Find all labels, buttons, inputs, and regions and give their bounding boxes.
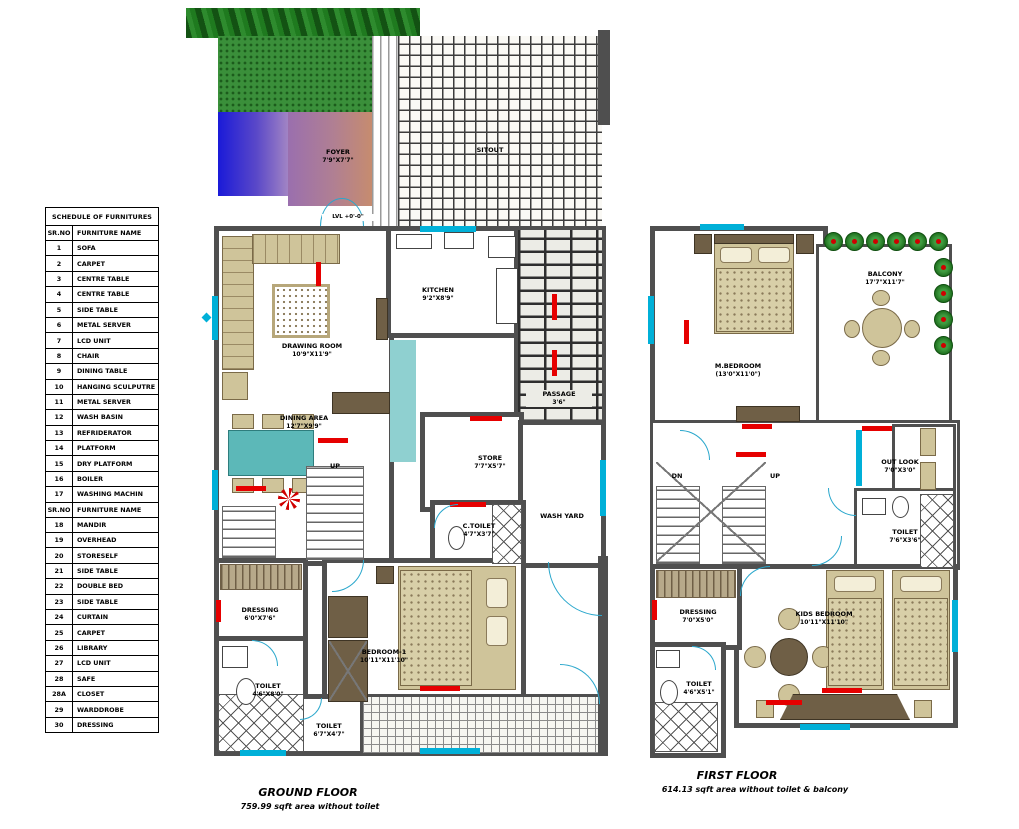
table-row: 19OVERHEAD bbox=[46, 533, 158, 548]
window bbox=[952, 600, 958, 652]
floor-plan-sheet: SCHEDULE OF FURNITURES SR.NO FURNITURE N… bbox=[0, 0, 1019, 829]
window bbox=[212, 470, 218, 510]
table-row: 20STORESELF bbox=[46, 548, 158, 563]
pillow bbox=[486, 578, 508, 608]
chair bbox=[872, 350, 890, 366]
side-table bbox=[694, 234, 712, 254]
window bbox=[648, 296, 654, 344]
level-label: LVL +0'-0" bbox=[322, 214, 374, 221]
room-label-toilet-master: TOILET 7'6"X3'6" bbox=[872, 528, 938, 545]
marker bbox=[652, 600, 657, 620]
table-row: 22DOUBLE BED bbox=[46, 579, 158, 594]
table-row: 12WASH BASIN bbox=[46, 410, 158, 425]
window bbox=[856, 430, 862, 486]
table-row: 18MANDIR bbox=[46, 518, 158, 533]
plant-icon bbox=[929, 232, 948, 251]
table-row: 26LIBRARY bbox=[46, 641, 158, 656]
sitout-paving bbox=[398, 36, 602, 232]
marker bbox=[766, 700, 802, 705]
table-row: 28ACLOSET bbox=[46, 687, 158, 702]
schedule-col-srno: SR.NO bbox=[46, 226, 73, 240]
centre-table bbox=[272, 284, 330, 338]
table-row: 2CARPET bbox=[46, 256, 158, 271]
schedule-col-srno: SR.NO bbox=[46, 503, 73, 517]
table-row: 28SAFE bbox=[46, 672, 158, 687]
room-label-foyer: FOYER 7'9"X7'7" bbox=[300, 148, 376, 165]
table-row: 9DINING TABLE bbox=[46, 364, 158, 379]
sofa bbox=[222, 236, 254, 370]
plant-icon bbox=[866, 232, 885, 251]
side-table bbox=[222, 372, 248, 400]
marker bbox=[316, 262, 321, 286]
table-row: 6METAL SERVER bbox=[46, 318, 158, 333]
marker bbox=[742, 424, 772, 429]
table-row: 13REFRIDERATOR bbox=[46, 426, 158, 441]
stair-direction-label: UP bbox=[760, 472, 790, 481]
bed-blanket bbox=[400, 570, 472, 686]
chair bbox=[744, 646, 766, 668]
window bbox=[212, 296, 218, 340]
marker bbox=[684, 320, 689, 344]
plant-icon bbox=[934, 310, 953, 329]
pillow bbox=[720, 247, 752, 263]
table-row: 27LCD UNIT bbox=[46, 656, 158, 671]
marker bbox=[420, 686, 460, 691]
shower-area bbox=[654, 702, 718, 752]
window bbox=[800, 724, 850, 730]
ground-floor-area: 759.99 sqft area without toilet bbox=[200, 802, 420, 811]
table-row: 5SIDE TABLE bbox=[46, 303, 158, 318]
bed-blanket bbox=[894, 598, 948, 686]
marker bbox=[736, 452, 766, 457]
table-row: 14PLATFORM bbox=[46, 441, 158, 456]
side-table bbox=[796, 234, 814, 254]
table-row: 8CHAIR bbox=[46, 349, 158, 364]
window bbox=[700, 224, 744, 230]
first-floor-title: FIRST FLOOR bbox=[662, 769, 812, 782]
schedule-rows-2: 18MANDIR19OVERHEAD20STORESELF21SIDE TABL… bbox=[46, 518, 158, 732]
table-row: 30DRESSING bbox=[46, 718, 158, 732]
wardrobe-rail bbox=[656, 570, 736, 598]
table-row: 25CARPET bbox=[46, 625, 158, 640]
lcd-unit bbox=[376, 298, 388, 340]
furniture-schedule-table: SCHEDULE OF FURNITURES SR.NO FURNITURE N… bbox=[45, 207, 159, 733]
room-label-kitchen: KITCHEN 9'2"X8'9" bbox=[398, 286, 478, 303]
room-label-passage: PASSAGE 3'6" bbox=[526, 390, 592, 407]
staircase-gf-lower bbox=[222, 506, 276, 558]
window bbox=[420, 748, 480, 754]
marker bbox=[552, 294, 557, 320]
schedule-title: SCHEDULE OF FURNITURES bbox=[46, 208, 158, 226]
level-marker-icon bbox=[202, 313, 212, 323]
wc-fixture bbox=[892, 496, 909, 518]
room-label-bedroom-1: BEDROOM-1 10'11"X11'10" bbox=[344, 648, 424, 665]
first-floor-area: 614.13 sqft area without toilet & balcon… bbox=[640, 785, 870, 794]
garden-lawn bbox=[218, 36, 374, 116]
pillow bbox=[834, 576, 876, 592]
room-wash-yard bbox=[518, 420, 606, 568]
marker bbox=[862, 426, 892, 431]
table-row: 24CURTAIN bbox=[46, 610, 158, 625]
table-row: 1SOFA bbox=[46, 241, 158, 256]
schedule-col-name: FURNITURE NAME bbox=[73, 503, 158, 517]
plant-icon bbox=[934, 336, 953, 355]
room-label-toilet-side: TOILET 4'6"X8'0" bbox=[232, 682, 304, 699]
table-row: 29WARDDROBE bbox=[46, 702, 158, 717]
bed-headboard bbox=[714, 234, 794, 244]
plant-icon bbox=[887, 232, 906, 251]
side-table bbox=[914, 700, 932, 718]
wash-basin bbox=[862, 498, 886, 515]
wardrobe bbox=[328, 596, 368, 638]
plant-icon bbox=[934, 284, 953, 303]
room-label-dining: DINING AREA 12'7"X9'9" bbox=[264, 414, 344, 431]
room-label-dressing-gf: DRESSING 6'0"X7'6" bbox=[224, 606, 296, 623]
wash-basin bbox=[656, 650, 680, 668]
passage-floor bbox=[390, 340, 416, 462]
room-label-toilet-common: TOILET 6'7"X4'7" bbox=[296, 722, 362, 739]
wash-basin bbox=[222, 646, 248, 668]
kitchen-sink bbox=[444, 232, 474, 249]
table-row: 10HANGING SCULPUTRE bbox=[46, 380, 158, 395]
room-label-wash-yard: WASH YARD bbox=[524, 512, 600, 521]
chair bbox=[232, 414, 254, 429]
pillow bbox=[758, 247, 790, 263]
table-row: 15DRY PLATFORM bbox=[46, 456, 158, 471]
hanging-sculpture-icon bbox=[278, 488, 300, 510]
table-row: 3CENTRE TABLE bbox=[46, 272, 158, 287]
stair-direction-label: DN bbox=[662, 472, 692, 481]
plant-icon bbox=[934, 258, 953, 277]
schedule-header-2: SR.NO FURNITURE NAME bbox=[46, 502, 158, 518]
water-feature bbox=[218, 112, 288, 196]
plant-icon bbox=[908, 232, 927, 251]
table-row: 11METAL SERVER bbox=[46, 395, 158, 410]
shutter-panel bbox=[920, 428, 936, 456]
dining-table bbox=[228, 430, 314, 476]
marker bbox=[822, 688, 862, 693]
wardrobe bbox=[736, 406, 800, 422]
entry-steps bbox=[372, 36, 398, 234]
window bbox=[420, 226, 476, 232]
schedule-header: SR.NO FURNITURE NAME bbox=[46, 226, 158, 241]
room-label-c-toilet: C.TOILET 4'7"X3'7" bbox=[444, 522, 514, 539]
marker bbox=[216, 600, 221, 622]
table-row: 21SIDE TABLE bbox=[46, 564, 158, 579]
metal-server bbox=[332, 392, 390, 414]
window bbox=[240, 750, 286, 756]
room-label-outlook: OUT LOOK 7'0"X3'0" bbox=[868, 458, 932, 475]
store-shelf bbox=[496, 268, 518, 324]
table-row: 4CENTRE TABLE bbox=[46, 287, 158, 302]
marker bbox=[318, 438, 348, 443]
schedule-rows-1: 1SOFA2CARPET3CENTRE TABLE4CENTRE TABLE5S… bbox=[46, 241, 158, 502]
sofa bbox=[252, 234, 340, 264]
door-arc bbox=[560, 664, 600, 704]
table-row: 16BOILER bbox=[46, 472, 158, 487]
plant-icon bbox=[824, 232, 843, 251]
round-table bbox=[770, 638, 808, 676]
room-label-sitout: SITOUT bbox=[452, 146, 528, 155]
window bbox=[600, 460, 606, 516]
round-table bbox=[862, 308, 902, 348]
staircase-gf bbox=[306, 466, 364, 560]
chair bbox=[844, 320, 860, 338]
room-label-drawing: DRAWING ROOM 10'9"X11'9" bbox=[272, 342, 352, 359]
room-label-master: M.BEDROOM (13'0"X11'0") bbox=[698, 362, 778, 379]
wall bbox=[598, 30, 610, 125]
tree-canopy-band bbox=[186, 8, 420, 38]
marker bbox=[552, 350, 557, 376]
sofa bbox=[780, 694, 910, 720]
side-table bbox=[376, 566, 394, 584]
refrigerator bbox=[488, 236, 516, 258]
chair bbox=[904, 320, 920, 338]
door-arc bbox=[548, 562, 602, 616]
platform-stove bbox=[396, 234, 432, 249]
bed-blanket bbox=[716, 268, 792, 332]
pillow bbox=[900, 576, 942, 592]
stair-direction-label: UP bbox=[318, 462, 352, 471]
wardrobe-rail bbox=[220, 564, 302, 590]
plant-icon bbox=[845, 232, 864, 251]
pillow bbox=[486, 616, 508, 646]
shower-area bbox=[218, 694, 304, 752]
table-row: 7LCD UNIT bbox=[46, 333, 158, 348]
room-label-dressing-ff: DRESSING 7'0"X5'0" bbox=[662, 608, 734, 625]
room-label-store: STORE 7'7"X5'7" bbox=[450, 454, 530, 471]
marker bbox=[236, 486, 266, 491]
chair bbox=[872, 290, 890, 306]
room-label-toilet-ff: TOILET 4'6"X5'1" bbox=[664, 680, 734, 697]
marker bbox=[470, 416, 502, 421]
ground-floor-title: GROUND FLOOR bbox=[228, 786, 388, 799]
table-row: 17WASHING MACHIN bbox=[46, 487, 158, 501]
room-label-balcony: BALCONY 17'7"X11'7" bbox=[846, 270, 924, 287]
schedule-col-name: FURNITURE NAME bbox=[73, 226, 158, 240]
room-label-kids: KIDS BEDROOM 10'11"X11'10" bbox=[782, 610, 866, 627]
table-row: 23SIDE TABLE bbox=[46, 595, 158, 610]
